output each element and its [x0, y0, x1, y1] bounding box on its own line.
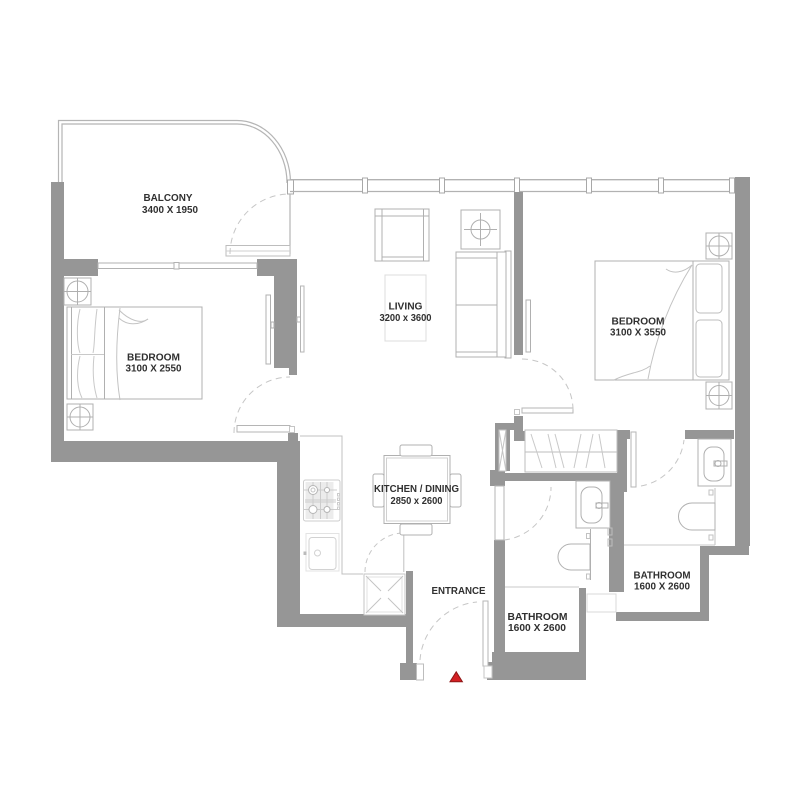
svg-text:2850 x 2600: 2850 x 2600: [391, 495, 443, 507]
svg-text:1600 X 2600: 1600 X 2600: [634, 581, 690, 593]
svg-text:1600 X 2600: 1600 X 2600: [508, 622, 566, 634]
svg-text:BALCONY: BALCONY: [144, 192, 193, 204]
svg-text:3100 X 2550: 3100 X 2550: [126, 363, 182, 375]
svg-text:3100 X 3550: 3100 X 3550: [610, 327, 666, 339]
svg-text:3400 X 1950: 3400 X 1950: [142, 204, 198, 216]
svg-text:LIVING: LIVING: [389, 301, 423, 313]
svg-text:KITCHEN / DINING: KITCHEN / DINING: [374, 483, 459, 495]
svg-text:ENTRANCE: ENTRANCE: [432, 585, 486, 597]
svg-text:3200 x 3600: 3200 x 3600: [380, 312, 432, 324]
